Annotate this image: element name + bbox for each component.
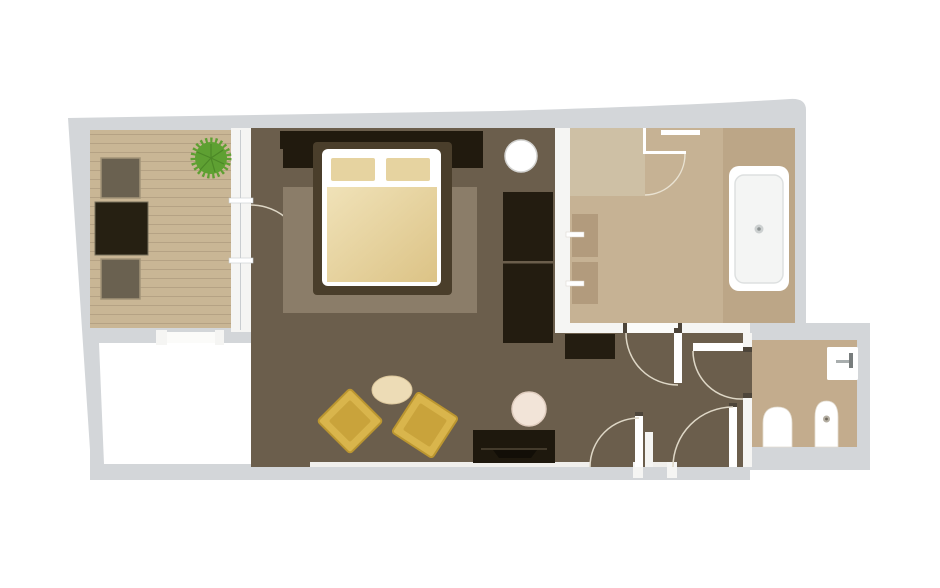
window-mullion <box>229 258 253 263</box>
deck-chair-top <box>101 158 140 198</box>
desk-top <box>473 430 555 463</box>
floor-plan-page <box>0 0 940 588</box>
desk-drawer-line <box>481 448 547 450</box>
door-jamb-block <box>156 330 167 345</box>
faucet <box>566 232 584 237</box>
round-side-table <box>505 140 537 172</box>
wardrobe-seam <box>503 261 553 264</box>
shower-glass <box>643 151 686 154</box>
bathtub <box>729 166 789 291</box>
desk-drawer-notch <box>493 450 537 458</box>
bidet <box>815 401 838 447</box>
bedroom-bathroom-wall <box>555 128 570 333</box>
deck-chair-bottom <box>101 259 140 299</box>
pillow-left <box>327 154 379 185</box>
oval-coffee-table <box>372 376 412 404</box>
luggage-bench <box>565 334 615 359</box>
bathroom-niche <box>661 130 700 135</box>
window-mullion <box>229 198 253 203</box>
door-leaf <box>635 415 643 467</box>
hall-wc-wall <box>743 333 752 467</box>
door-leaf <box>693 343 743 351</box>
balcony-window-wall <box>229 128 253 332</box>
door-jamb-block <box>215 330 224 345</box>
toilet <box>763 407 792 447</box>
wc-doorway <box>743 352 752 398</box>
duvet <box>327 187 437 282</box>
door-leaf <box>729 407 737 467</box>
pillow <box>386 158 430 181</box>
door-jamb <box>743 393 752 398</box>
shower-glass <box>643 128 646 154</box>
pillow <box>331 158 375 181</box>
desk <box>473 430 555 463</box>
door-jamb <box>623 323 627 333</box>
floor-plan-canvas <box>0 0 940 588</box>
bathroom-door-opening <box>623 323 682 333</box>
wardrobe <box>503 192 553 343</box>
pillow-right <box>382 154 434 185</box>
door-jamb-block <box>667 462 677 478</box>
round-stool <box>512 392 546 426</box>
bedroom <box>280 131 553 343</box>
door-opening <box>167 332 215 343</box>
door-hinge <box>674 328 682 333</box>
nightstand-right <box>452 149 483 168</box>
wall-segment <box>743 398 752 467</box>
wc-sink <box>827 347 858 380</box>
faucet <box>566 281 584 286</box>
tub-drain-dot <box>757 227 761 231</box>
deck-table <box>95 202 148 255</box>
sink-basin <box>827 347 858 380</box>
door-jamb <box>743 347 752 352</box>
nightstand-left <box>283 149 313 168</box>
bidet-drain-dot <box>825 418 828 421</box>
door-hinge <box>635 412 643 416</box>
bidet-body <box>815 401 838 447</box>
shower-zone <box>570 128 645 196</box>
stub-wall <box>645 432 653 467</box>
door-leaf <box>674 332 682 383</box>
bathroom-bottom-wall <box>555 323 750 333</box>
wall-segment <box>682 323 750 333</box>
wall-segment <box>555 323 623 333</box>
sink-faucet-handle <box>849 353 853 368</box>
